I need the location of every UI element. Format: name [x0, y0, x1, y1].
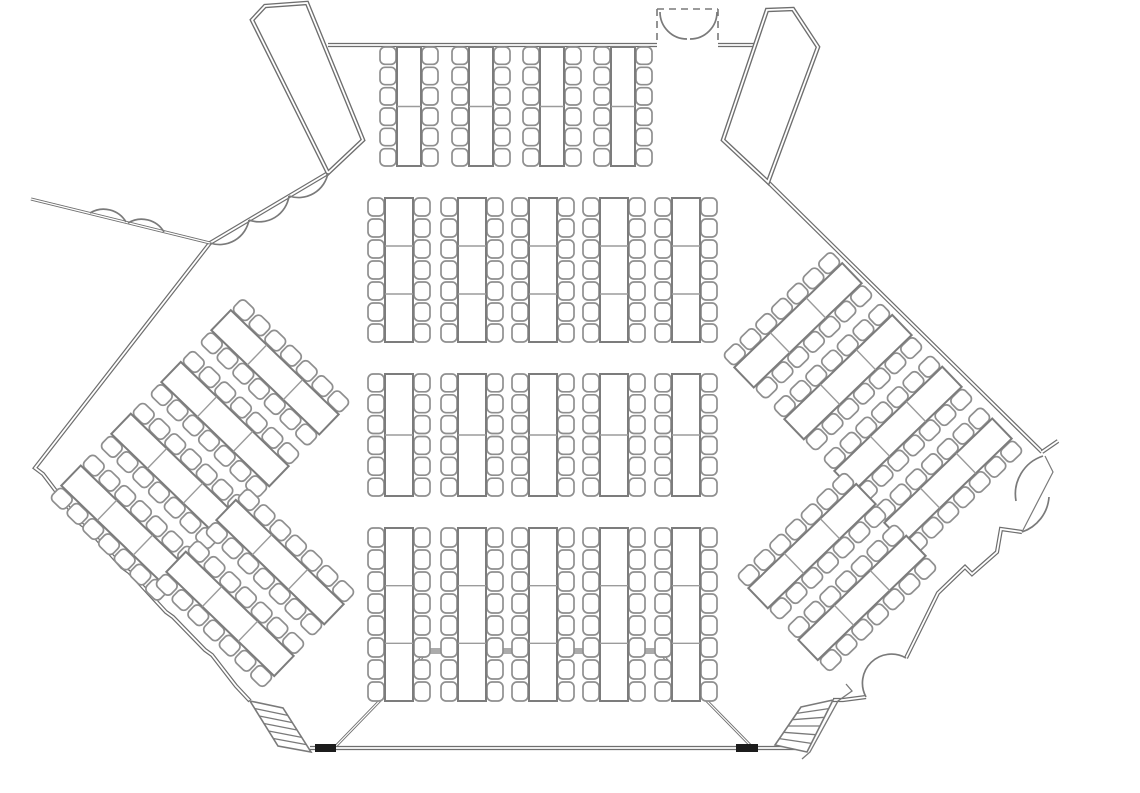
chair	[368, 478, 384, 496]
chair	[583, 682, 599, 701]
east-door-lower-leaf-arc	[1022, 497, 1049, 532]
chair	[380, 67, 396, 84]
table-group	[655, 198, 717, 342]
chair	[368, 437, 384, 455]
chair	[701, 638, 717, 657]
chair	[441, 324, 457, 342]
chair	[441, 437, 457, 455]
chair	[441, 261, 457, 279]
chair	[558, 219, 574, 237]
chair	[558, 616, 574, 635]
chair	[701, 395, 717, 413]
chair	[494, 108, 510, 125]
chair	[558, 240, 574, 258]
table-group	[441, 198, 503, 342]
middle-row-2	[368, 374, 717, 496]
chair	[441, 416, 457, 434]
chair	[655, 660, 671, 679]
chair	[487, 261, 503, 279]
chair	[414, 478, 430, 496]
chair	[655, 303, 671, 321]
chair	[414, 261, 430, 279]
chair	[558, 478, 574, 496]
chair	[368, 261, 384, 279]
chair	[636, 47, 652, 64]
dining-table	[458, 528, 486, 701]
dining-table	[600, 198, 628, 342]
chair	[583, 457, 599, 475]
chair	[629, 660, 645, 679]
chair	[452, 47, 468, 64]
chair	[558, 660, 574, 679]
chair	[494, 128, 510, 145]
table-group	[512, 528, 574, 701]
chair	[558, 303, 574, 321]
north-door-left-leaf-arc	[660, 12, 687, 39]
chair	[629, 198, 645, 216]
chair	[583, 437, 599, 455]
chair	[487, 219, 503, 237]
middle-row-1	[368, 198, 717, 342]
chair	[487, 395, 503, 413]
chair	[414, 550, 430, 569]
chair	[558, 282, 574, 300]
chair	[368, 528, 384, 547]
chair	[487, 198, 503, 216]
chair	[655, 240, 671, 258]
chair	[629, 616, 645, 635]
chair	[583, 478, 599, 496]
chair	[558, 550, 574, 569]
table-group	[441, 528, 503, 701]
exterior-spur-wall-gap	[31, 199, 210, 243]
chair	[583, 240, 599, 258]
table-group	[583, 528, 645, 701]
chair	[487, 616, 503, 635]
chair	[414, 616, 430, 635]
chair	[636, 88, 652, 105]
chair	[368, 660, 384, 679]
table-group	[368, 198, 430, 342]
chair	[655, 282, 671, 300]
chair	[655, 324, 671, 342]
chair	[368, 198, 384, 216]
chair	[701, 261, 717, 279]
chair	[629, 594, 645, 613]
chair	[512, 219, 528, 237]
chair	[441, 550, 457, 569]
chair	[594, 128, 610, 145]
chair	[558, 416, 574, 434]
chair	[655, 594, 671, 613]
chair	[368, 682, 384, 701]
table-group	[655, 374, 717, 496]
dining-table	[385, 198, 413, 342]
southeast-wall-recess-arc	[862, 654, 906, 697]
chair	[368, 303, 384, 321]
northwest-wall-gap	[210, 173, 328, 243]
chair	[414, 374, 430, 392]
chair	[368, 572, 384, 591]
chair	[414, 682, 430, 701]
chair	[565, 108, 581, 125]
chair	[558, 324, 574, 342]
chair	[414, 528, 430, 547]
table-group	[512, 198, 574, 342]
chair	[512, 261, 528, 279]
chair	[380, 47, 396, 64]
chair	[558, 682, 574, 701]
chair	[512, 572, 528, 591]
dining-table	[385, 528, 413, 701]
chair	[655, 550, 671, 569]
chair	[422, 88, 438, 105]
chair	[583, 374, 599, 392]
table-group	[512, 374, 574, 496]
chair	[414, 660, 430, 679]
chair	[629, 638, 645, 657]
chair	[655, 478, 671, 496]
chair	[368, 416, 384, 434]
chair	[441, 682, 457, 701]
chair	[487, 324, 503, 342]
chair	[655, 528, 671, 547]
chair	[583, 282, 599, 300]
chair	[414, 638, 430, 657]
chair	[701, 660, 717, 679]
chair	[414, 324, 430, 342]
chair	[368, 282, 384, 300]
chair	[512, 682, 528, 701]
chair	[701, 616, 717, 635]
chair	[368, 219, 384, 237]
chair	[414, 303, 430, 321]
floor-plan-drawing	[0, 0, 1140, 793]
chair	[636, 108, 652, 125]
table-group	[583, 198, 645, 342]
chair	[452, 88, 468, 105]
chair	[487, 528, 503, 547]
chair	[655, 198, 671, 216]
chair	[629, 437, 645, 455]
chair	[636, 128, 652, 145]
chair	[512, 395, 528, 413]
chair	[565, 149, 581, 166]
chair	[583, 395, 599, 413]
chair	[655, 374, 671, 392]
chair	[512, 303, 528, 321]
chair	[441, 303, 457, 321]
chair	[512, 457, 528, 475]
chair	[441, 616, 457, 635]
chair	[701, 457, 717, 475]
chair	[523, 47, 539, 64]
east-door-upper-leaf-arc	[1015, 456, 1043, 501]
chair	[655, 638, 671, 657]
chair	[701, 374, 717, 392]
chair	[441, 638, 457, 657]
chair	[701, 682, 717, 701]
chair	[452, 108, 468, 125]
chair	[422, 149, 438, 166]
chair	[629, 240, 645, 258]
northwest-vestibule	[252, 3, 363, 173]
north-door-right-leaf-arc	[690, 12, 717, 39]
chair	[487, 457, 503, 475]
chair	[701, 219, 717, 237]
chair	[629, 528, 645, 547]
chair	[558, 198, 574, 216]
chair	[494, 88, 510, 105]
chair	[629, 478, 645, 496]
chair	[512, 478, 528, 496]
chair	[701, 594, 717, 613]
chair	[368, 457, 384, 475]
chair	[380, 128, 396, 145]
chair	[583, 572, 599, 591]
southwest-stairs	[250, 701, 311, 752]
chair	[565, 47, 581, 64]
chair	[422, 47, 438, 64]
chair	[487, 478, 503, 496]
dining-table	[672, 198, 700, 342]
chair	[701, 478, 717, 496]
chair	[422, 128, 438, 145]
chair	[594, 108, 610, 125]
dining-table	[529, 528, 557, 701]
chair	[414, 437, 430, 455]
chair	[441, 395, 457, 413]
chair	[368, 550, 384, 569]
dining-table	[458, 198, 486, 342]
chair	[512, 528, 528, 547]
chair	[441, 219, 457, 237]
chair	[655, 437, 671, 455]
chair	[558, 638, 574, 657]
floor-plan-canvas	[0, 0, 1140, 793]
chair	[487, 660, 503, 679]
east-door-chord	[1022, 456, 1053, 532]
chair	[629, 219, 645, 237]
chair	[487, 682, 503, 701]
chair	[558, 528, 574, 547]
chair	[512, 240, 528, 258]
chair	[558, 395, 574, 413]
chair	[368, 395, 384, 413]
north-row	[380, 47, 652, 166]
chair	[583, 416, 599, 434]
table-group	[441, 374, 503, 496]
table-group	[380, 47, 438, 166]
chair	[512, 198, 528, 216]
table-group	[452, 47, 510, 166]
chair	[523, 67, 539, 84]
chair	[701, 240, 717, 258]
chair	[629, 374, 645, 392]
chair	[565, 67, 581, 84]
chair	[701, 303, 717, 321]
chair	[701, 528, 717, 547]
chair	[701, 198, 717, 216]
chair	[701, 282, 717, 300]
chair	[487, 240, 503, 258]
chair	[441, 572, 457, 591]
chair	[512, 550, 528, 569]
chair	[636, 149, 652, 166]
chair	[701, 416, 717, 434]
chair	[441, 198, 457, 216]
chair	[512, 374, 528, 392]
chair	[487, 437, 503, 455]
south-wall-cap-east	[736, 744, 758, 752]
chair	[487, 572, 503, 591]
chair	[452, 67, 468, 84]
dining-table	[672, 528, 700, 701]
chair	[523, 128, 539, 145]
chair	[494, 67, 510, 84]
chair	[523, 149, 539, 166]
chair	[512, 616, 528, 635]
chair	[512, 324, 528, 342]
chair	[512, 437, 528, 455]
chair	[655, 572, 671, 591]
chair	[368, 616, 384, 635]
chair	[441, 594, 457, 613]
chair	[494, 149, 510, 166]
chair	[380, 108, 396, 125]
chair	[583, 261, 599, 279]
chair	[558, 261, 574, 279]
chair	[655, 682, 671, 701]
chair	[512, 660, 528, 679]
chair	[368, 638, 384, 657]
chair	[629, 261, 645, 279]
chair	[512, 282, 528, 300]
chair	[655, 219, 671, 237]
chair	[629, 395, 645, 413]
chair	[655, 395, 671, 413]
chair	[583, 324, 599, 342]
chair	[414, 240, 430, 258]
chair	[441, 457, 457, 475]
chair	[629, 572, 645, 591]
chair	[558, 457, 574, 475]
chair	[414, 395, 430, 413]
chair	[565, 88, 581, 105]
chair	[380, 149, 396, 166]
table-group	[368, 528, 430, 701]
chair	[414, 219, 430, 237]
chair	[512, 594, 528, 613]
south-row	[368, 528, 717, 701]
chair	[523, 88, 539, 105]
table-group	[594, 47, 652, 166]
chair	[422, 108, 438, 125]
chair	[487, 303, 503, 321]
chair	[368, 374, 384, 392]
south-wall-cap-west	[315, 744, 336, 752]
dining-table	[600, 528, 628, 701]
seating	[49, 47, 1023, 701]
chair	[368, 594, 384, 613]
chair	[565, 128, 581, 145]
chair	[487, 638, 503, 657]
chair	[594, 149, 610, 166]
chair	[523, 108, 539, 125]
chair	[368, 240, 384, 258]
chair	[487, 550, 503, 569]
chair	[701, 572, 717, 591]
chair	[487, 594, 503, 613]
chair	[655, 261, 671, 279]
chair	[558, 374, 574, 392]
chair	[512, 638, 528, 657]
chair	[701, 324, 717, 342]
chair	[629, 416, 645, 434]
chair	[380, 88, 396, 105]
table-group	[583, 374, 645, 496]
chair	[583, 594, 599, 613]
chair	[558, 594, 574, 613]
northeast-stub-gap	[1042, 441, 1058, 452]
chair	[583, 616, 599, 635]
chair	[583, 550, 599, 569]
table-group	[655, 528, 717, 701]
chair	[441, 374, 457, 392]
chair	[422, 67, 438, 84]
chair	[368, 324, 384, 342]
chair	[583, 219, 599, 237]
chair	[452, 128, 468, 145]
chair	[558, 572, 574, 591]
chair	[629, 324, 645, 342]
chair	[701, 437, 717, 455]
chair	[452, 149, 468, 166]
chair	[414, 594, 430, 613]
chair	[441, 478, 457, 496]
chair	[629, 303, 645, 321]
chair	[494, 47, 510, 64]
chair	[441, 282, 457, 300]
chair	[414, 572, 430, 591]
chair	[583, 528, 599, 547]
chair	[629, 457, 645, 475]
chair	[414, 457, 430, 475]
chair	[583, 198, 599, 216]
table-group	[523, 47, 581, 166]
chair	[487, 374, 503, 392]
chair	[594, 47, 610, 64]
chair	[414, 198, 430, 216]
chair	[636, 67, 652, 84]
chair	[487, 416, 503, 434]
chair	[701, 550, 717, 569]
dining-table	[529, 198, 557, 342]
table-group	[368, 374, 430, 496]
chair	[441, 528, 457, 547]
chair	[629, 282, 645, 300]
chair	[414, 416, 430, 434]
chair	[594, 67, 610, 84]
chair	[441, 240, 457, 258]
chair	[629, 682, 645, 701]
chair	[583, 638, 599, 657]
chair	[583, 660, 599, 679]
chair	[629, 550, 645, 569]
chair	[594, 88, 610, 105]
chair	[512, 416, 528, 434]
chair	[583, 303, 599, 321]
